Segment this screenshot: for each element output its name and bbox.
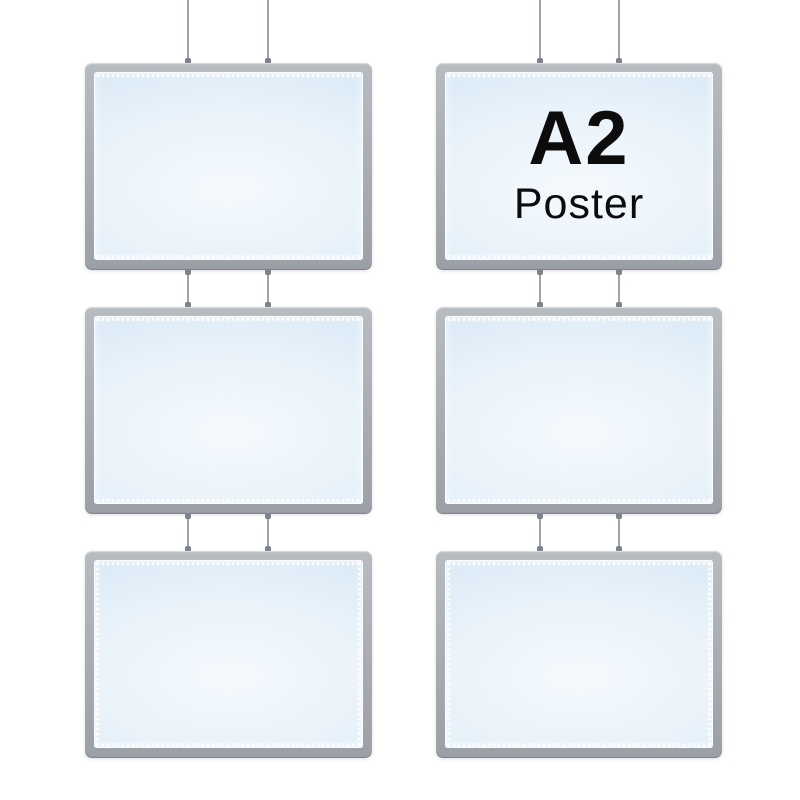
- led-strip-top: [448, 318, 710, 321]
- lightbox-frame-middle-left: [85, 307, 372, 514]
- hanging-cable: [618, 270, 620, 307]
- led-strip-left: [96, 563, 99, 745]
- lightbox-frame-bottom-left: [85, 551, 372, 758]
- hanging-cable: [187, 514, 189, 551]
- led-strip-top: [97, 318, 360, 321]
- led-panel: [94, 72, 363, 260]
- led-strip-left: [447, 563, 450, 745]
- led-panel: [94, 316, 363, 504]
- poster-kind-text: Poster: [514, 183, 644, 226]
- led-panel: [445, 560, 713, 748]
- led-strip-bottom: [97, 255, 360, 258]
- hanging-cable: [187, 0, 189, 63]
- led-strip-bottom: [97, 499, 360, 502]
- led-strip-bottom: [448, 499, 710, 502]
- led-strip-top: [97, 562, 360, 565]
- led-strip-right: [358, 563, 361, 745]
- led-panel: [445, 316, 713, 504]
- lightbox-frame-middle-right: [436, 307, 722, 514]
- lightbox-frame-top-right: A2 Poster: [436, 63, 722, 270]
- hanging-cable: [539, 0, 541, 63]
- poster-size-text: A2: [528, 106, 629, 173]
- hanging-cable: [618, 514, 620, 551]
- led-strip-right: [708, 563, 711, 745]
- led-strip-bottom: [97, 743, 360, 746]
- led-strip-bottom: [448, 743, 710, 746]
- hanging-cable: [267, 270, 269, 307]
- lightbox-frame-top-left: [85, 63, 372, 270]
- led-panel: [94, 560, 363, 748]
- hanging-cable: [267, 0, 269, 63]
- hanging-cable: [187, 270, 189, 307]
- hanging-cable: [539, 270, 541, 307]
- product-photo-stage: A2 Poster: [0, 0, 800, 800]
- lightbox-frame-bottom-right: [436, 551, 722, 758]
- led-panel: A2 Poster: [445, 72, 713, 260]
- led-strip-top: [448, 562, 710, 565]
- poster-label: A2 Poster: [445, 72, 713, 260]
- hanging-cable: [618, 0, 620, 63]
- hanging-cable: [267, 514, 269, 551]
- led-strip-top: [97, 74, 360, 77]
- hanging-cable: [539, 514, 541, 551]
